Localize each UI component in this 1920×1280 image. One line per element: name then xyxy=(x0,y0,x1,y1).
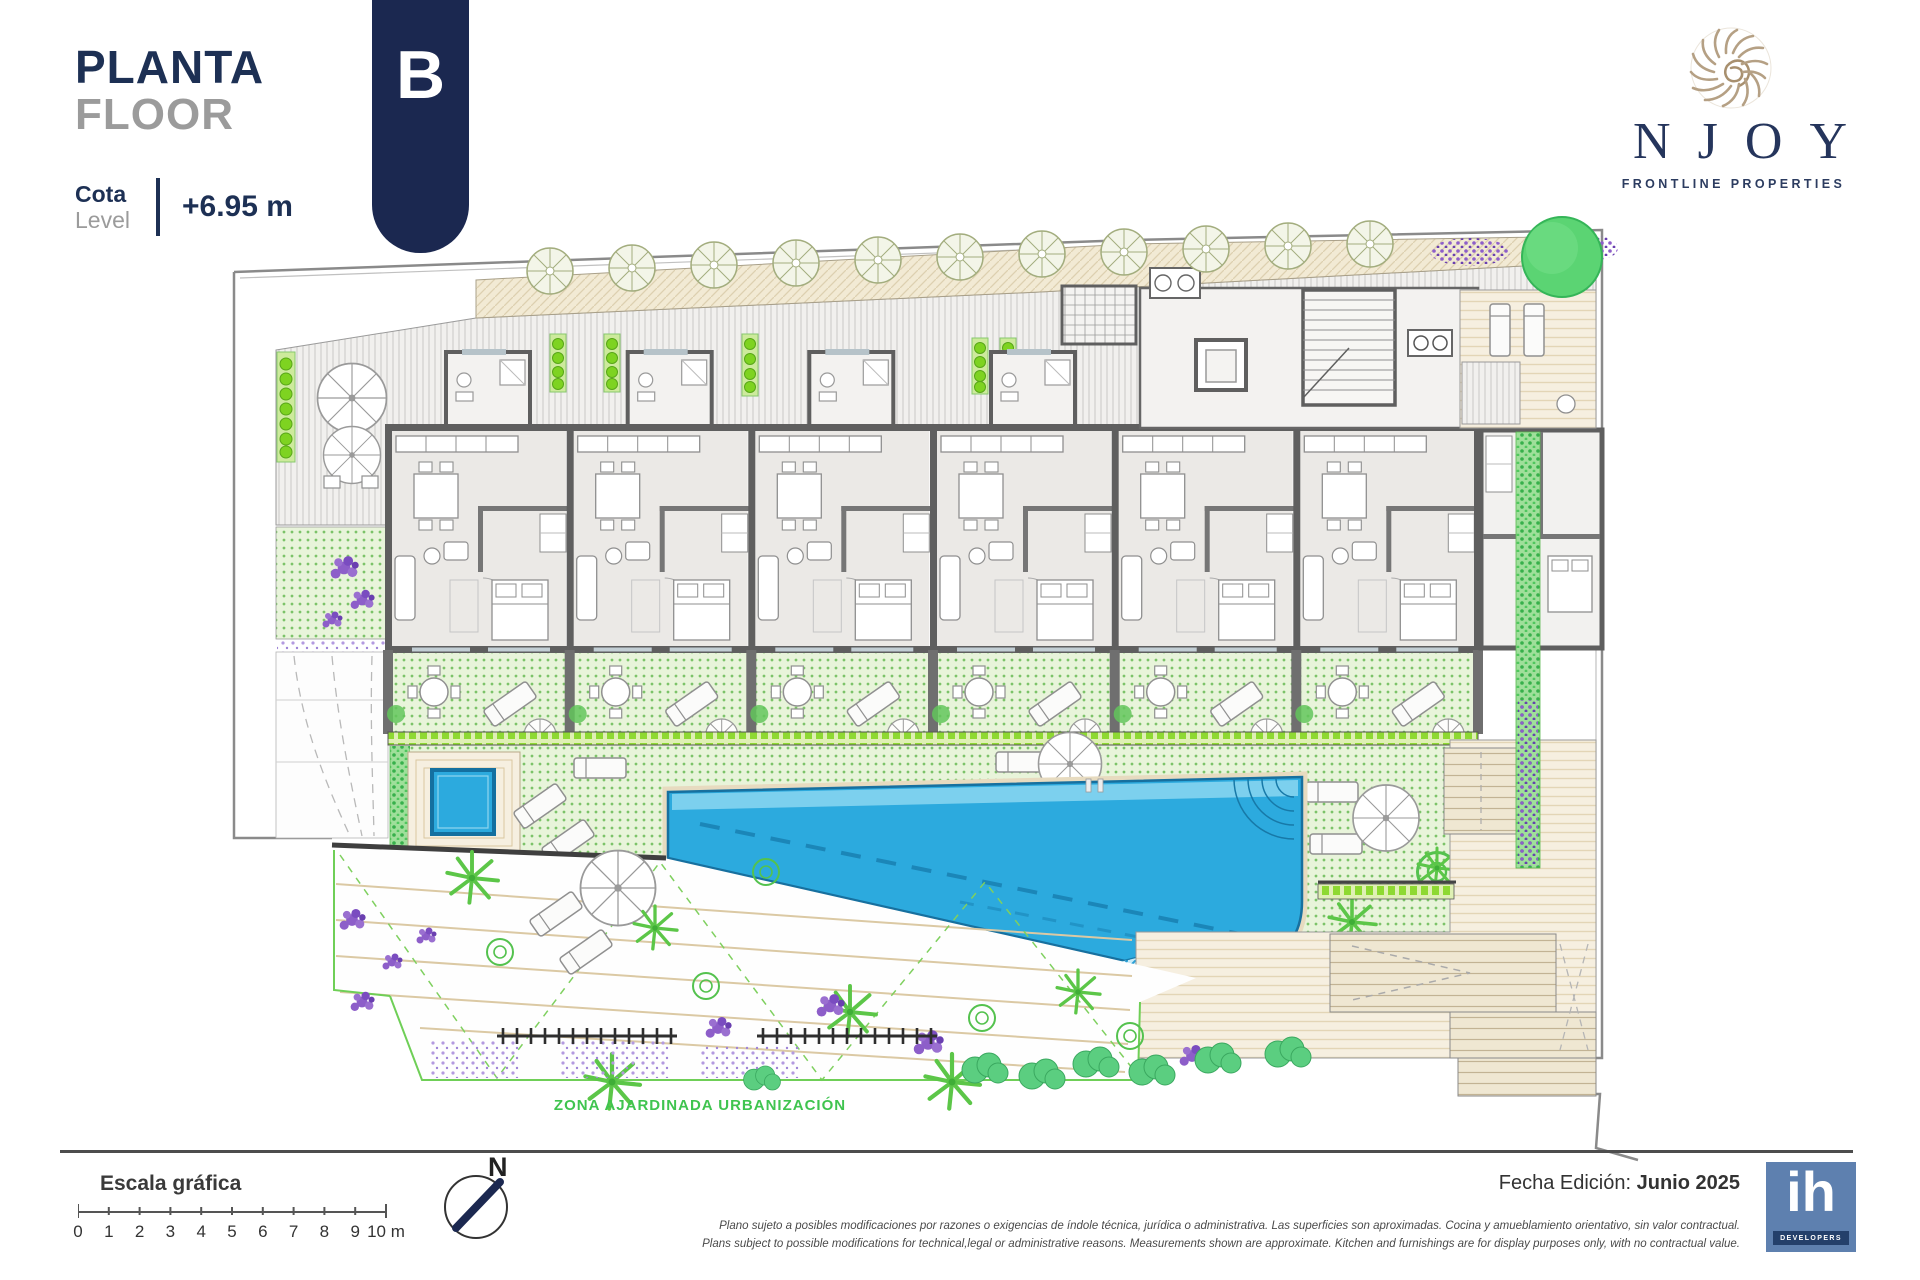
scale-tick-label: 10 m xyxy=(367,1222,405,1242)
developer-logo: ih DEVELOPERS xyxy=(1766,1162,1856,1252)
laundry xyxy=(1150,268,1200,298)
scale-tick-label: 5 xyxy=(227,1222,236,1242)
title-block: PLANTA FLOOR xyxy=(75,44,264,138)
disclaimer: Plano sujeto a posibles modificaciones p… xyxy=(600,1218,1740,1254)
compass-needle xyxy=(456,1182,500,1228)
north-label: N xyxy=(488,1152,508,1183)
brand-logo: NJOY FRONTLINE PROPERTIES xyxy=(1606,24,1861,191)
level-value: +6.95 m xyxy=(182,190,293,224)
scale-tick-label: 1 xyxy=(104,1222,113,1242)
scale-tick-label: 0 xyxy=(73,1222,82,1242)
developer-band: DEVELOPERS xyxy=(1773,1231,1849,1245)
scale-tick-label: 7 xyxy=(289,1222,298,1242)
scale-tick-label: 4 xyxy=(196,1222,205,1242)
developer-abbr: ih xyxy=(1786,1164,1836,1220)
page-title: PLANTA xyxy=(75,44,264,92)
scale-tick-label: 8 xyxy=(320,1222,329,1242)
scale-title: Escala gráfica xyxy=(100,1172,241,1196)
level-divider xyxy=(156,178,160,236)
access-ramp xyxy=(276,652,388,838)
level-block: Cota Level +6.95 m xyxy=(75,178,293,236)
scale-labels: 012345678910 m xyxy=(78,1222,438,1246)
floor-plan-sheet: ZONA AJARDINADA URBANIZACIÓN PLANTA FLOO… xyxy=(0,0,1920,1280)
footer-divider xyxy=(60,1150,1853,1153)
edition-value: Junio 2025 xyxy=(1637,1172,1740,1194)
edition-date: Fecha Edición: Junio 2025 xyxy=(1499,1172,1740,1195)
staircase xyxy=(1303,290,1395,405)
block-badge: B xyxy=(372,0,469,253)
east-apartment xyxy=(1481,430,1602,648)
hedge-east xyxy=(1516,432,1540,868)
page-title-en: FLOOR xyxy=(75,92,264,138)
cota-label: Cota xyxy=(75,181,130,207)
storage-room xyxy=(1062,286,1136,344)
brand-name: NJOY xyxy=(1633,112,1861,171)
scale-tick-label: 6 xyxy=(258,1222,267,1242)
block-letter: B xyxy=(396,36,445,253)
level-label: Level xyxy=(75,207,130,233)
disclaimer-en: Plans subject to possible modifications … xyxy=(600,1236,1740,1254)
garden-zone-label: ZONA AJARDINADA URBANIZACIÓN xyxy=(554,1096,846,1114)
developer-name: DEVELOPERS xyxy=(1780,1235,1842,1242)
brand-tagline: FRONTLINE PROPERTIES xyxy=(1606,177,1861,191)
edition-label: Fecha Edición: xyxy=(1499,1172,1631,1194)
scale-tick-label: 3 xyxy=(166,1222,175,1242)
sun-deck xyxy=(1460,290,1596,428)
left-planter-strip xyxy=(277,352,295,462)
garden-steps xyxy=(1330,934,1556,1012)
left-garden-block xyxy=(276,527,388,652)
scale-tick-label: 2 xyxy=(135,1222,144,1242)
nautilus-shell-icon xyxy=(1679,24,1789,110)
disclaimer-es: Plano sujeto a posibles modificaciones p… xyxy=(600,1218,1740,1236)
terrace-planter-band xyxy=(388,732,1478,745)
scale-tick-label: 9 xyxy=(350,1222,359,1242)
